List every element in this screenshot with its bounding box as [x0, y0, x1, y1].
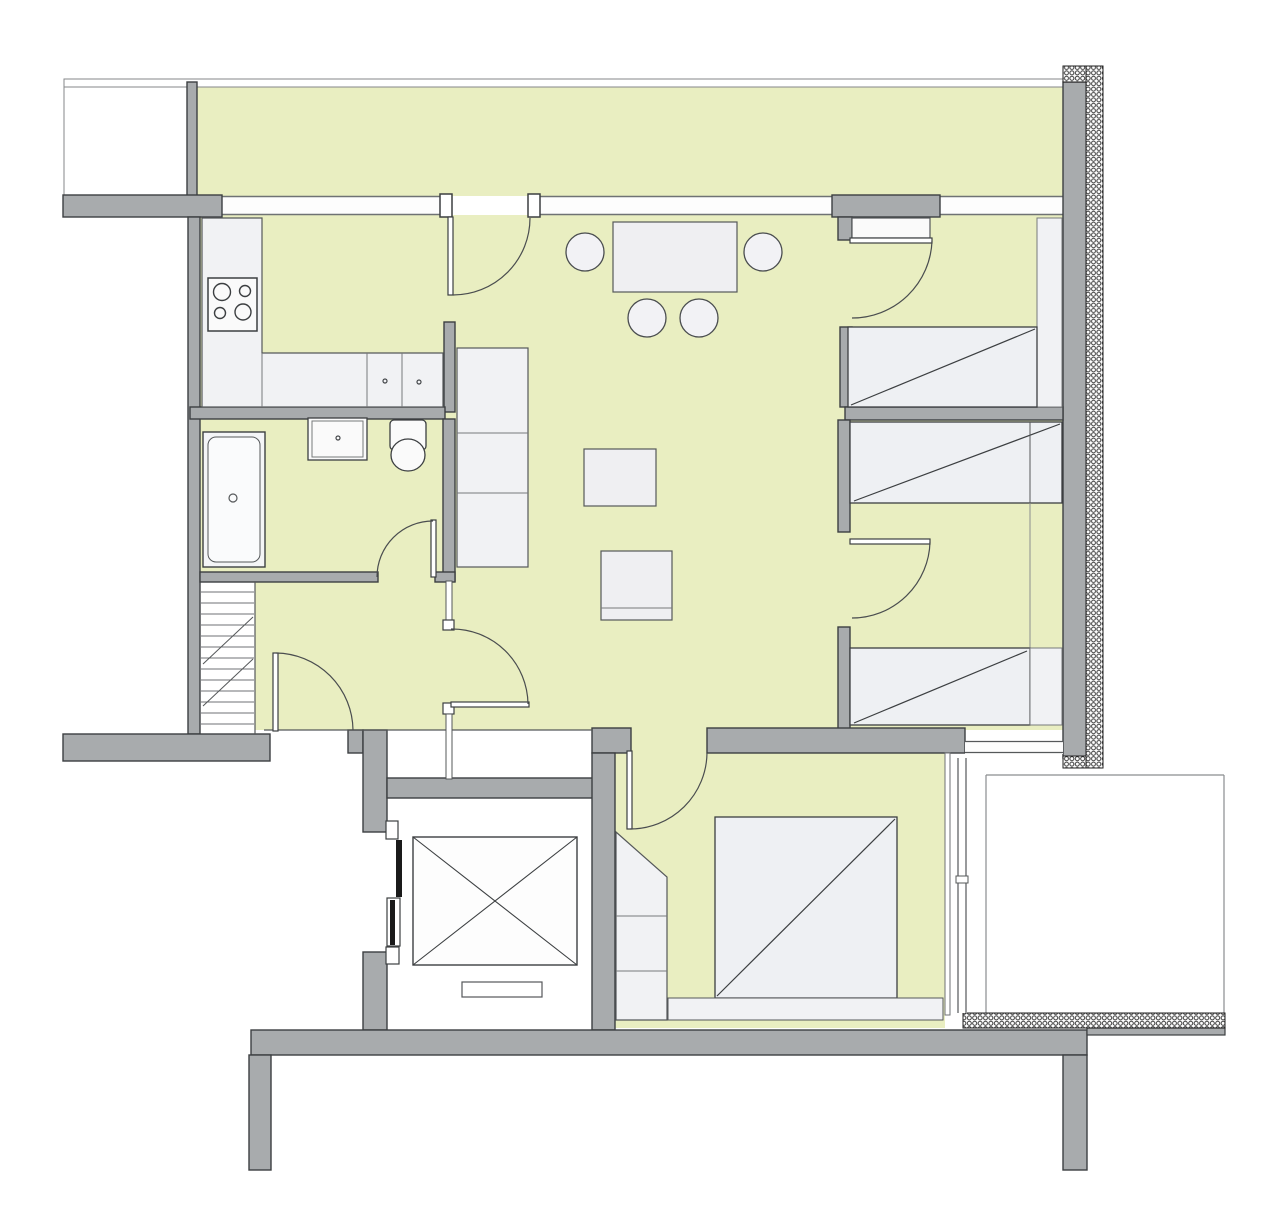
- wall-lobby-block: [363, 730, 387, 832]
- wall-pier-radiator: [832, 195, 940, 217]
- bedroom4-door-leaf: [627, 751, 632, 829]
- wall-divider-bedrooms: [845, 407, 1063, 420]
- dining-chair-3: [628, 299, 666, 337]
- insulation-hatch-top: [1063, 66, 1086, 82]
- elevator-door-cap-bottom: [386, 947, 399, 964]
- window-band-kitchen: [222, 196, 440, 215]
- wall-bath-east: [443, 419, 455, 581]
- radiator-box: [852, 218, 930, 238]
- wall-corridor-south: [387, 778, 607, 798]
- hall-cabinet: [457, 348, 528, 567]
- entry-door-closed: [446, 714, 452, 779]
- elevator-door-cap-top: [386, 821, 398, 839]
- balcony-railing-hatch: [963, 1013, 1225, 1028]
- wall-lobby-lip: [348, 730, 363, 753]
- washbasin-outer: [308, 418, 367, 460]
- toilet-bowl: [391, 439, 425, 471]
- terrace-door-leaf: [448, 217, 453, 295]
- window-band-mid: [540, 196, 832, 215]
- wall-bedroom3-west-lower: [838, 627, 850, 733]
- floor-plan-shapes: [63, 66, 1225, 1170]
- bedroom3-side-shelf: [1030, 648, 1062, 725]
- wall-top-left: [63, 195, 222, 217]
- window-bedroom4-tick: [956, 876, 968, 883]
- bathtub-inner: [208, 437, 260, 562]
- tv-board: [601, 551, 672, 620]
- dining-table: [613, 222, 737, 292]
- wall-bedroom3-west-upper: [838, 420, 850, 532]
- wall-right-lower: [1063, 1055, 1087, 1170]
- elevator-counterweight: [462, 982, 542, 997]
- wall-bedrooms-south: [707, 728, 965, 753]
- wall-right: [1063, 82, 1088, 758]
- insulation-hatch-bottom: [1063, 756, 1086, 768]
- elevator-door-bar-a: [396, 840, 402, 897]
- window-bedroom4-inner: [945, 753, 950, 1015]
- wall-bottom-band: [251, 1030, 1087, 1055]
- door-jamb-terrace-left: [440, 194, 452, 217]
- wall-shaft-west-lower: [363, 952, 387, 1030]
- insulation-hatch-column: [1086, 66, 1103, 768]
- terrace-parapet: [64, 79, 1064, 87]
- bedroom4-footer-board: [668, 998, 943, 1020]
- door-jamb-terrace-right: [528, 194, 540, 217]
- wall-bottom-left: [63, 734, 270, 761]
- wall-bath-north: [190, 407, 445, 419]
- window-band-right: [940, 196, 1063, 215]
- hall-living-door-leaf: [451, 702, 529, 707]
- bedroom2-closet: [1037, 218, 1062, 407]
- dining-chair-1: [566, 233, 604, 271]
- wall-bedroom4-west: [592, 753, 615, 1030]
- bedroom2-door-leaf: [850, 238, 932, 243]
- elevator-door-bar-b: [390, 900, 395, 945]
- floor-plan: [0, 0, 1280, 1228]
- wall-bath-south-left: [200, 572, 378, 582]
- wall-jamb-bedroom2: [838, 217, 852, 240]
- terrace-floor: [197, 86, 1063, 196]
- floor-plan-svg: [0, 0, 1280, 1228]
- wall-thin-right: [1087, 1028, 1225, 1035]
- dining-chair-4: [680, 299, 718, 337]
- wall-bedroom4-west-top: [592, 728, 631, 753]
- wall-left-lower: [249, 1055, 271, 1170]
- hall-partition-upper: [446, 581, 452, 620]
- dining-chair-2: [744, 233, 782, 271]
- coffee-table: [584, 449, 656, 506]
- hall-entry-door-leaf: [273, 653, 278, 731]
- bathroom-door-leaf: [431, 520, 436, 577]
- wall-west: [188, 217, 200, 734]
- wall-terrace-divider: [187, 82, 197, 196]
- wall-kitchen-stub: [444, 322, 455, 412]
- bedroom3-door-leaf: [850, 539, 930, 544]
